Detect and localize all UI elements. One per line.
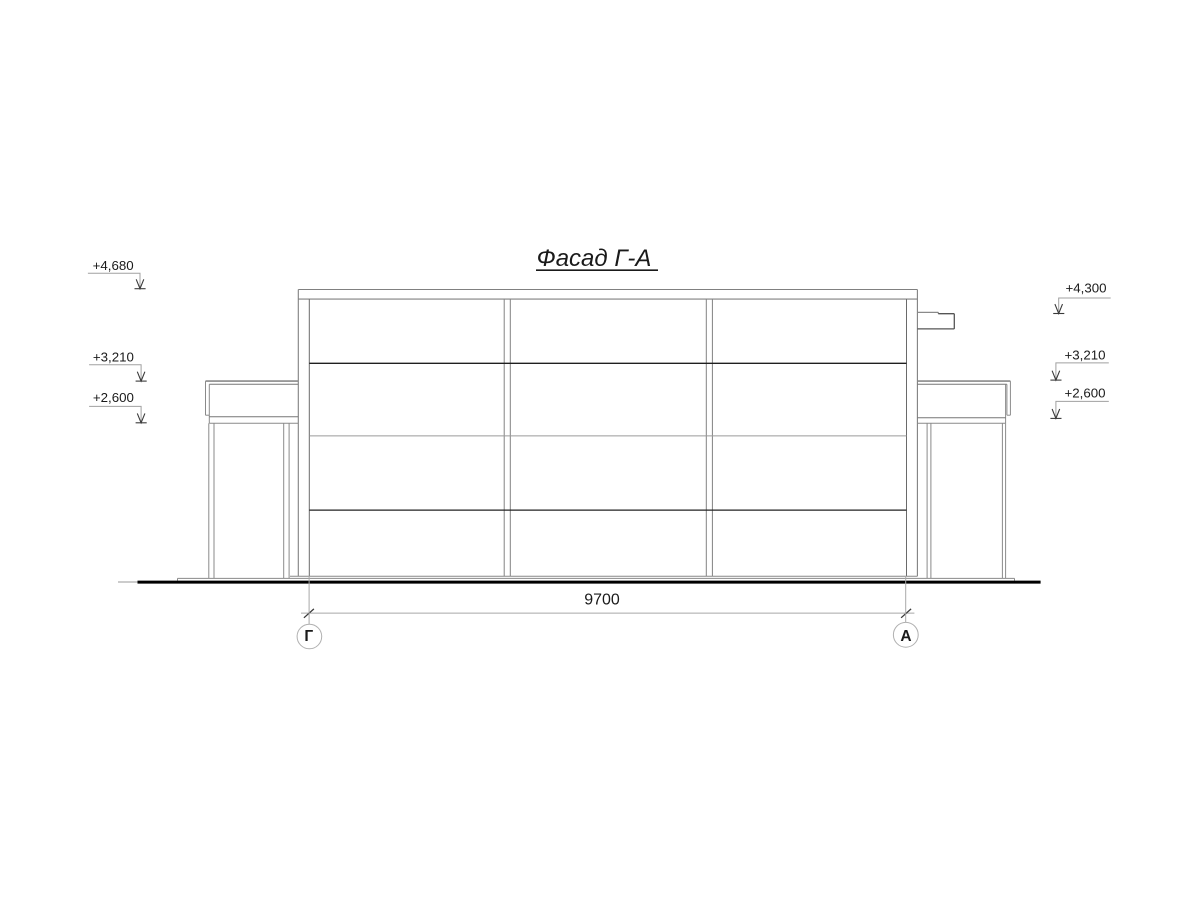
svg-text:А: А (900, 628, 911, 645)
svg-text:9700: 9700 (584, 592, 620, 609)
svg-text:+2,600: +2,600 (1065, 385, 1106, 400)
svg-text:Фасад Г-А: Фасад Г-А (537, 245, 652, 272)
svg-text:+4,300: +4,300 (1066, 280, 1107, 295)
svg-text:+4,680: +4,680 (93, 258, 134, 273)
svg-text:+3,210: +3,210 (1065, 347, 1106, 362)
svg-text:+2,600: +2,600 (93, 390, 134, 405)
svg-text:Г: Г (304, 628, 313, 645)
svg-text:+3,210: +3,210 (93, 349, 134, 364)
